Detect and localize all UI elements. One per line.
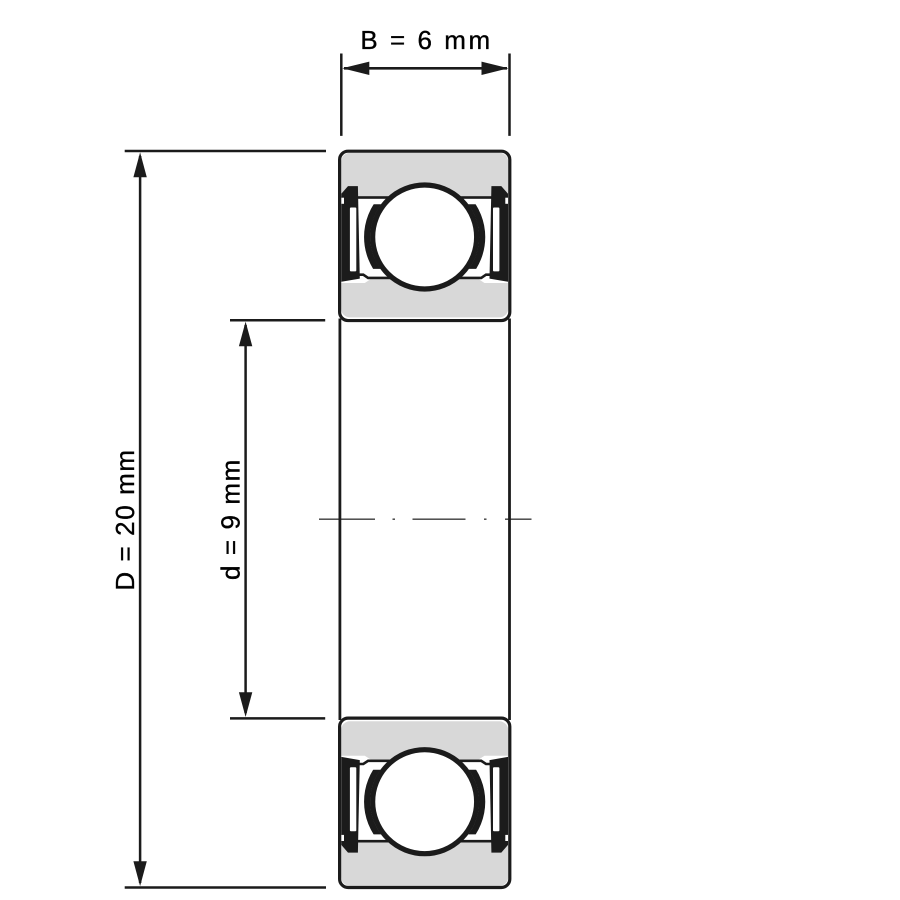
svg-text:d = 9 mm: d = 9 mm bbox=[216, 458, 246, 580]
svg-text:B = 6 mm: B = 6 mm bbox=[360, 25, 492, 55]
svg-text:D = 20 mm: D = 20 mm bbox=[110, 448, 140, 590]
